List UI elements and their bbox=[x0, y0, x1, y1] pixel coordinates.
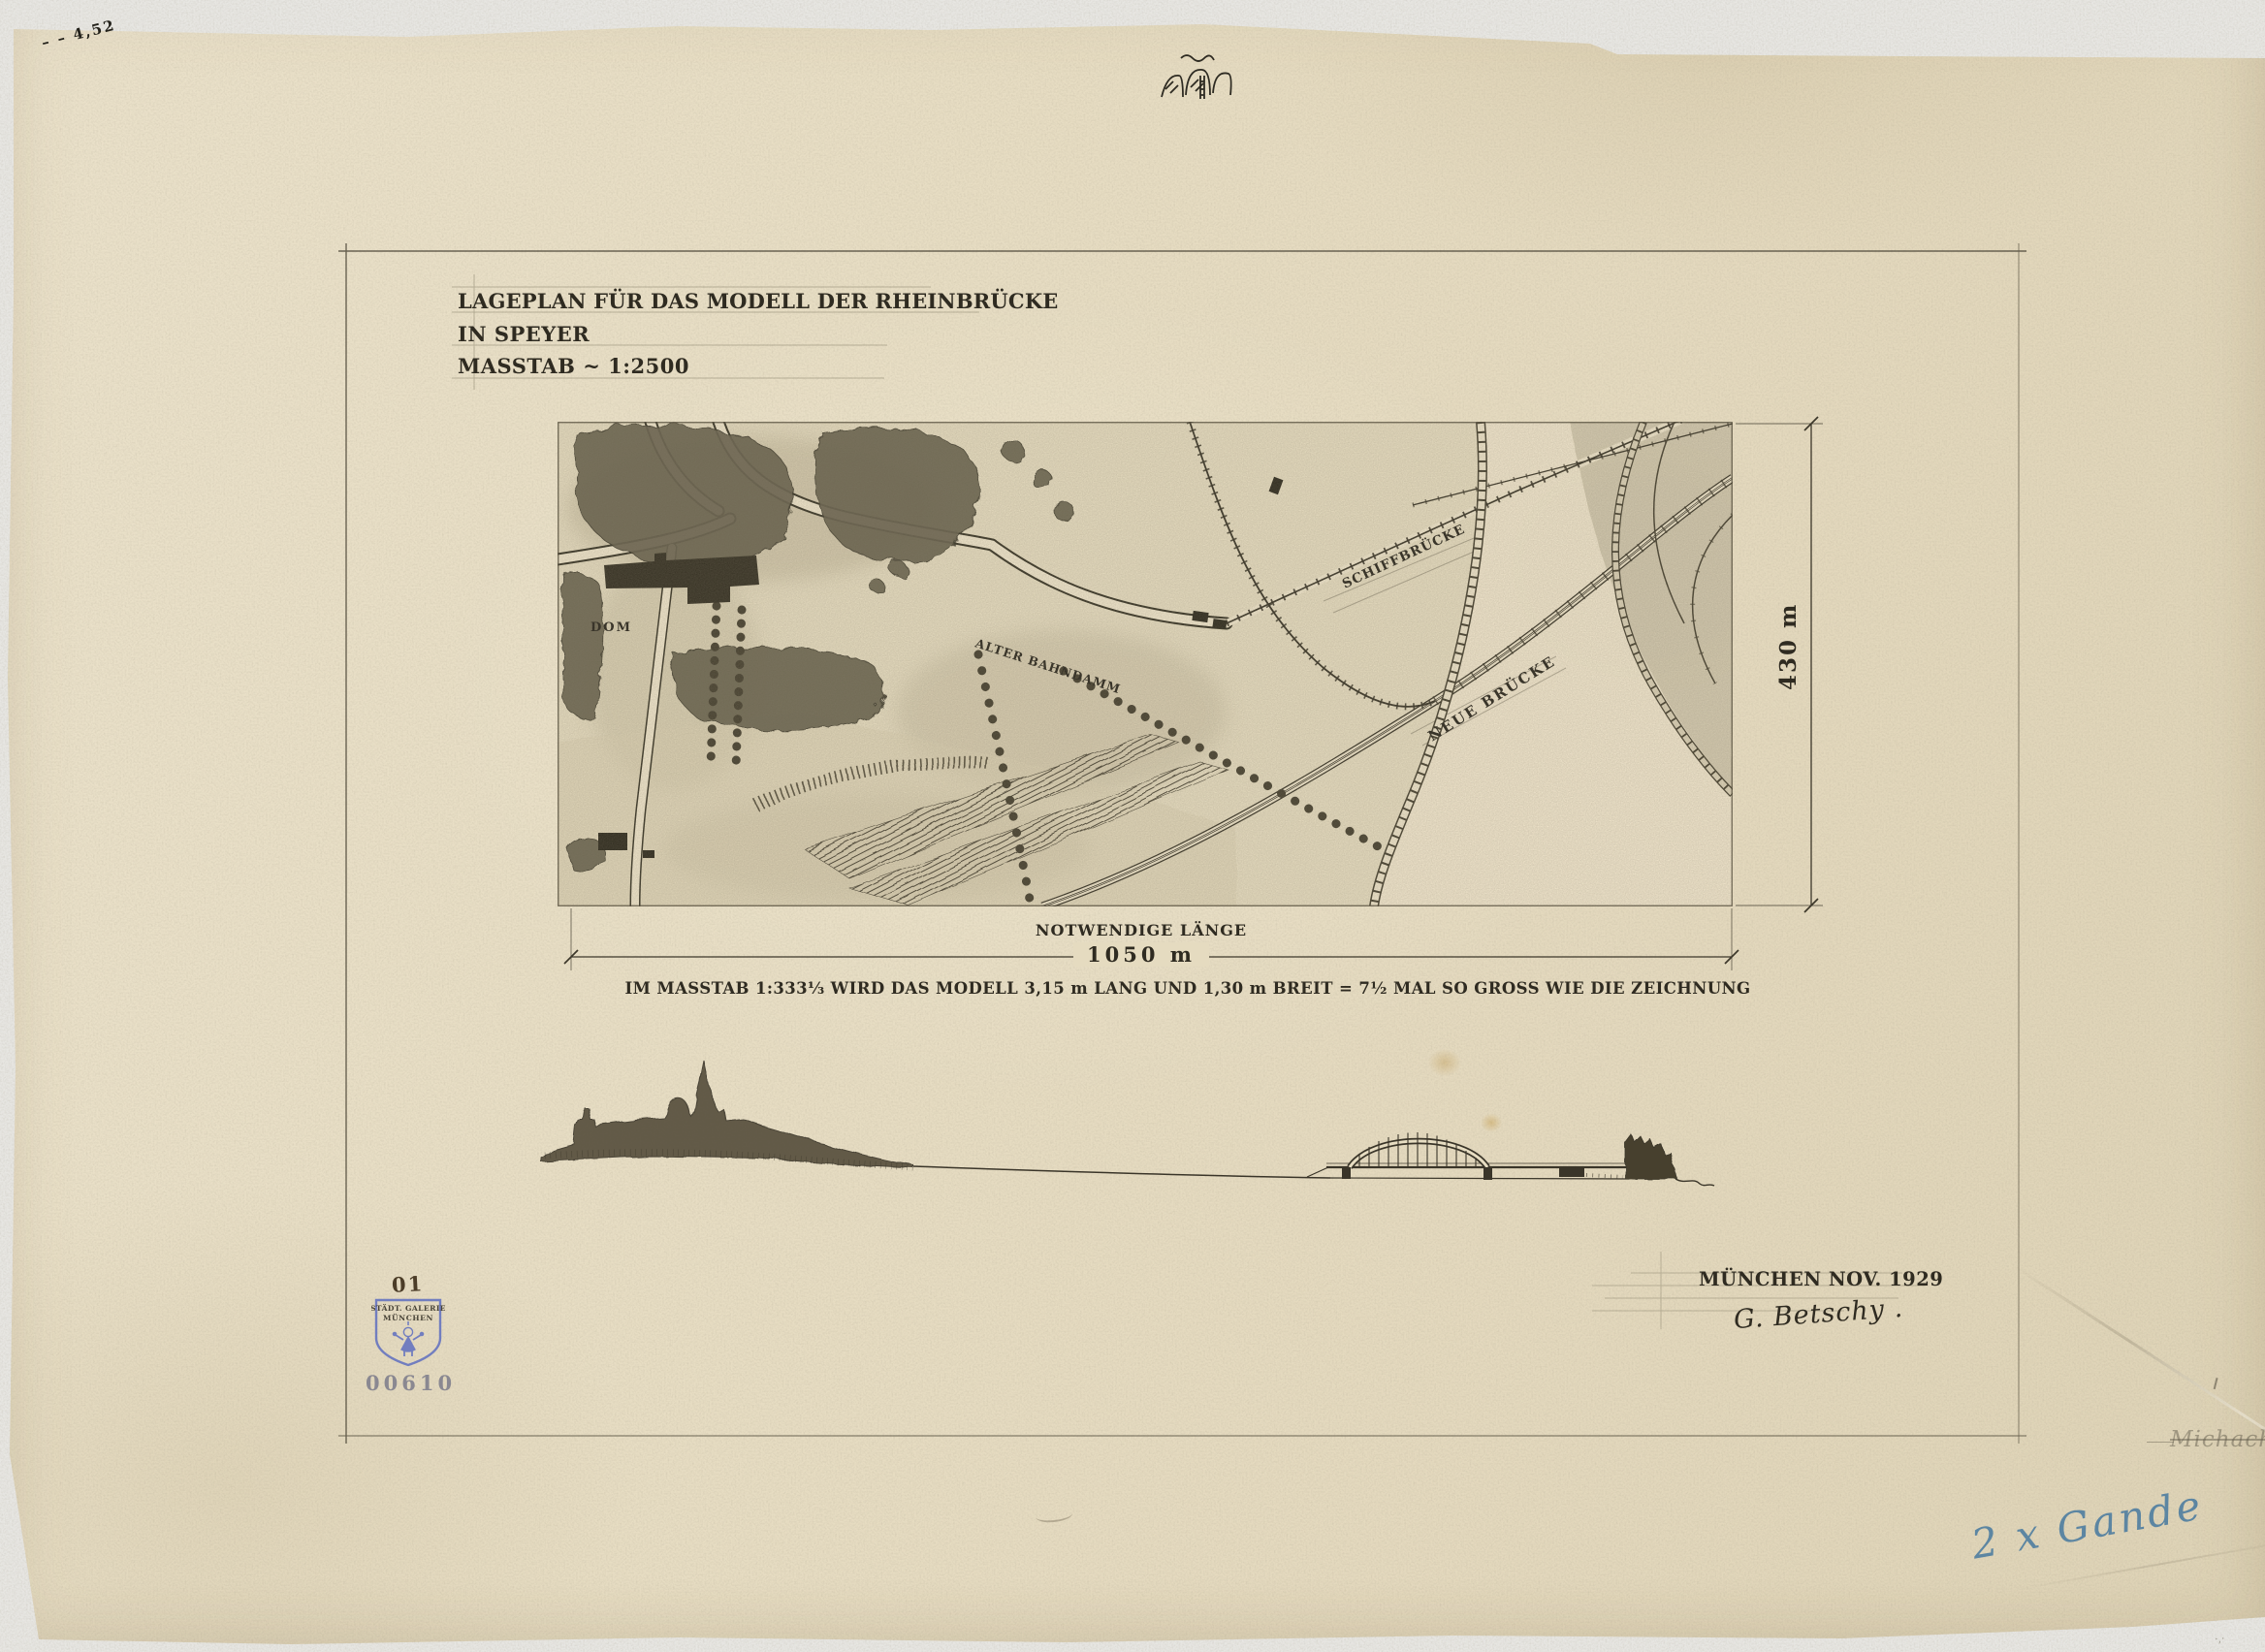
map-grain bbox=[558, 422, 1733, 906]
edge-pencil-note: Michach bbox=[2170, 1427, 2265, 1452]
right-bank-trees bbox=[1625, 1134, 1677, 1179]
corner-faint-mark: ·,· bbox=[2214, 1633, 2225, 1646]
elevation-silhouette bbox=[533, 1043, 1726, 1237]
title-line-3: MASSTAB ~ 1:2500 bbox=[458, 354, 689, 378]
scale-note: IM MASSTAB 1:333⅓ WIRD DAS MODELL 3,15 m… bbox=[625, 979, 1751, 998]
top-center-doodle bbox=[1154, 47, 1241, 109]
accession-number: 00610 bbox=[366, 1371, 456, 1395]
bank-end-squiggle bbox=[1675, 1179, 1714, 1186]
length-dimension-label: NOTWENDIGE LÄNGE bbox=[1036, 921, 1247, 939]
stamp-text-line1: STÄDT. GALERIE bbox=[371, 1304, 445, 1313]
title-line-2: IN SPEYER bbox=[458, 322, 590, 346]
place-date: MÜNCHEN NOV. 1929 bbox=[1699, 1268, 1943, 1290]
edge-note-dash bbox=[2147, 1442, 2174, 1443]
stamp-text-line2: MÜNCHEN bbox=[383, 1314, 433, 1322]
shore-line bbox=[1330, 1178, 1629, 1179]
site-plan-map: DOM ALTER BAHNDAMM SCHIFFBRÜCKE NEUE BRÜ… bbox=[558, 422, 1733, 906]
town-silhouette bbox=[541, 1061, 913, 1168]
handwritten-number: 01 bbox=[391, 1271, 424, 1297]
scanned-drawing-sheet: 430 m bbox=[0, 0, 2265, 1652]
gallery-stamp: STÄDT. GALERIE MÜNCHEN bbox=[371, 1295, 445, 1371]
length-dimension-value: 1050 m bbox=[1073, 942, 1209, 967]
title-line-1: LAGEPLAN FÜR DAS MODELL DER RHEINBRÜCKE bbox=[458, 289, 1059, 313]
ground-line bbox=[913, 1166, 1330, 1178]
muenchner-kindl-icon bbox=[393, 1321, 424, 1356]
